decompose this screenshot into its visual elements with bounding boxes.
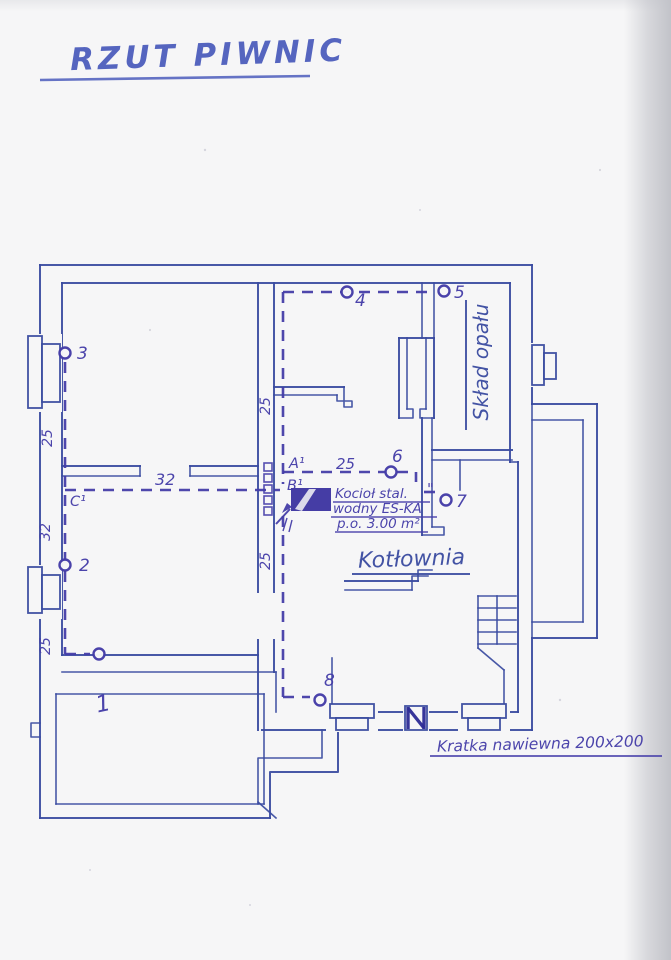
dim-left-lower: 25 [38,637,54,655]
point-2: 2 [79,556,90,576]
dim-center-lower: 25 [258,552,274,570]
porch-and-exterior-stairs [56,694,322,818]
boiler-symbol [276,488,331,532]
node-6 [386,467,397,478]
window-left-upper [28,336,42,408]
air-grille-symbol [403,704,429,732]
page-title: RZUT PIWNIC [69,33,346,79]
side-annex [532,420,583,622]
point-5: 5 [454,283,465,303]
boiler-note-line1: Kocioł stal. [335,486,408,502]
section-c: C¹ [70,494,86,510]
room-label-fuel-storage: Skład opału [469,304,493,421]
dim-center-upper: 25 [258,397,274,415]
window-left-lower [28,567,42,613]
node-3 [60,348,71,359]
ditto-mark: " [427,480,434,498]
scanned-basement-plan: RZUT PIWNIC Kotłownia Skład opału Kratka… [0,0,671,960]
point-8: 8 [324,671,335,691]
node-4 [342,287,353,298]
window-bottom-right [462,704,506,718]
node-1 [94,649,105,660]
dim-a-line: 25 [336,455,355,473]
dim-c-line: 32 [155,470,175,489]
node-2 [60,560,71,571]
boiler-note-line3: p.o. 3.00 m² [336,516,420,532]
interior-staircase [478,596,516,712]
point-4: 4 [355,291,366,311]
point-3: 3 [77,344,88,364]
point-7: 7 [456,492,467,512]
plan-svg: RZUT PIWNIC Kotłownia Skład opału Kratka… [0,0,671,960]
node-7 [441,495,452,506]
node-8 [315,695,326,706]
grille-note: Kratka nawiewna 200x200 [437,732,644,755]
section-a: A¹ [288,456,305,472]
dim-left-mid: 32 [38,523,54,541]
annotations: RZUT PIWNIC Kotłownia Skład opału Kratka… [38,33,662,756]
room-label-boiler-room: Kotłownia [358,545,466,574]
point-6: 6 [392,447,403,467]
dim-left-upper: 25 [40,429,56,447]
boiler-note-line2: wodny ES-KA [333,501,422,517]
window-bottom-left [330,704,374,718]
section-b: B¹ [287,478,303,494]
window-right [532,345,544,385]
node-5 [439,286,450,297]
